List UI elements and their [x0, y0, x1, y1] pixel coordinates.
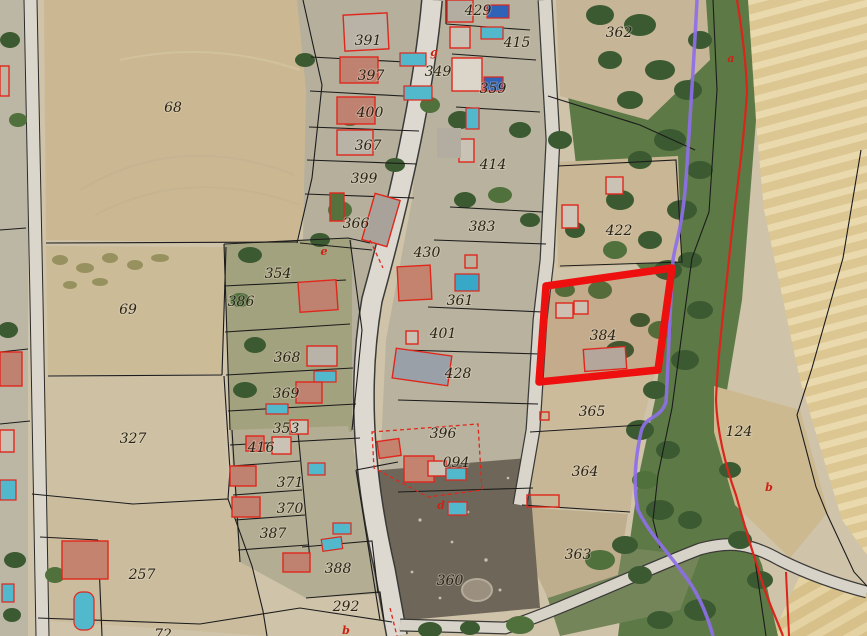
- parcel-label-388: 388: [325, 561, 352, 577]
- parcel-label-401: 401: [429, 326, 457, 342]
- marker-letter-a-1: a: [727, 52, 734, 65]
- parcel-label-396: 396: [430, 426, 457, 442]
- parcel-label-292: 292: [332, 599, 360, 615]
- field-68: [44, 0, 322, 243]
- parcel-label-363: 363: [565, 547, 592, 563]
- roof-414: [437, 128, 461, 158]
- marker-letter-b-4: b: [342, 624, 350, 636]
- parcel-label-364: 364: [572, 464, 599, 480]
- parcel-label-094: 094: [443, 455, 470, 471]
- parcel-label-69: 69: [119, 302, 137, 318]
- marker-letter-g-0: g: [430, 46, 438, 59]
- cadastral-map-viewport[interactable]: 6869327257723913974003673993663543863683…: [0, 0, 867, 636]
- parcel-label-422: 422: [605, 223, 633, 239]
- marker-letter-e-2: e: [321, 245, 328, 258]
- parcel-label-367: 367: [355, 138, 382, 154]
- highlighted-parcel-384[interactable]: [539, 268, 672, 382]
- parcel-label-354: 354: [265, 266, 292, 282]
- parcel-label-397: 397: [358, 68, 385, 84]
- parcel-label-349: 349: [425, 64, 452, 80]
- parcel-label-391: 391: [355, 33, 382, 49]
- circular-ruin: [462, 579, 492, 601]
- parcel-label-414: 414: [479, 157, 507, 173]
- parcel-label-371: 371: [277, 475, 304, 491]
- parcel-label-359: 359: [480, 81, 507, 97]
- parcel-label-257: 257: [128, 567, 156, 583]
- parcel-label-124: 124: [726, 424, 753, 440]
- parcel-label-72: 72: [154, 627, 172, 636]
- parcel-label-428: 428: [444, 366, 472, 382]
- parcel-label-366: 366: [343, 216, 370, 232]
- marker-letter-d-3: d: [437, 499, 445, 512]
- parcel-label-369: 369: [273, 386, 300, 402]
- parcel-label-387: 387: [260, 526, 287, 542]
- parcel-label-68: 68: [164, 100, 182, 116]
- parcel-label-399: 399: [351, 171, 378, 187]
- parcel-label-368: 368: [274, 350, 301, 366]
- parcel-label-383: 383: [469, 219, 496, 235]
- parcel-label-415: 415: [503, 35, 531, 51]
- parcel-label-360: 360: [437, 573, 464, 589]
- parcel-label-416: 416: [247, 440, 275, 456]
- parcel-label-384: 384: [590, 328, 617, 344]
- parcel-label-429: 429: [464, 3, 492, 19]
- parcel-label-430: 430: [413, 245, 441, 261]
- parcel-label-370: 370: [277, 501, 304, 517]
- marker-letter-b-5: b: [765, 481, 773, 494]
- parcel-label-361: 361: [447, 293, 474, 309]
- parcel-label-365: 365: [579, 404, 606, 420]
- parcel-label-400: 400: [356, 105, 384, 121]
- parcel-label-353: 353: [273, 421, 300, 437]
- map-canvas[interactable]: 6869327257723913974003673993663543863683…: [0, 0, 867, 636]
- parcel-label-362: 362: [606, 25, 633, 41]
- parcel-label-327: 327: [120, 431, 147, 447]
- parcel-label-386: 386: [228, 294, 255, 310]
